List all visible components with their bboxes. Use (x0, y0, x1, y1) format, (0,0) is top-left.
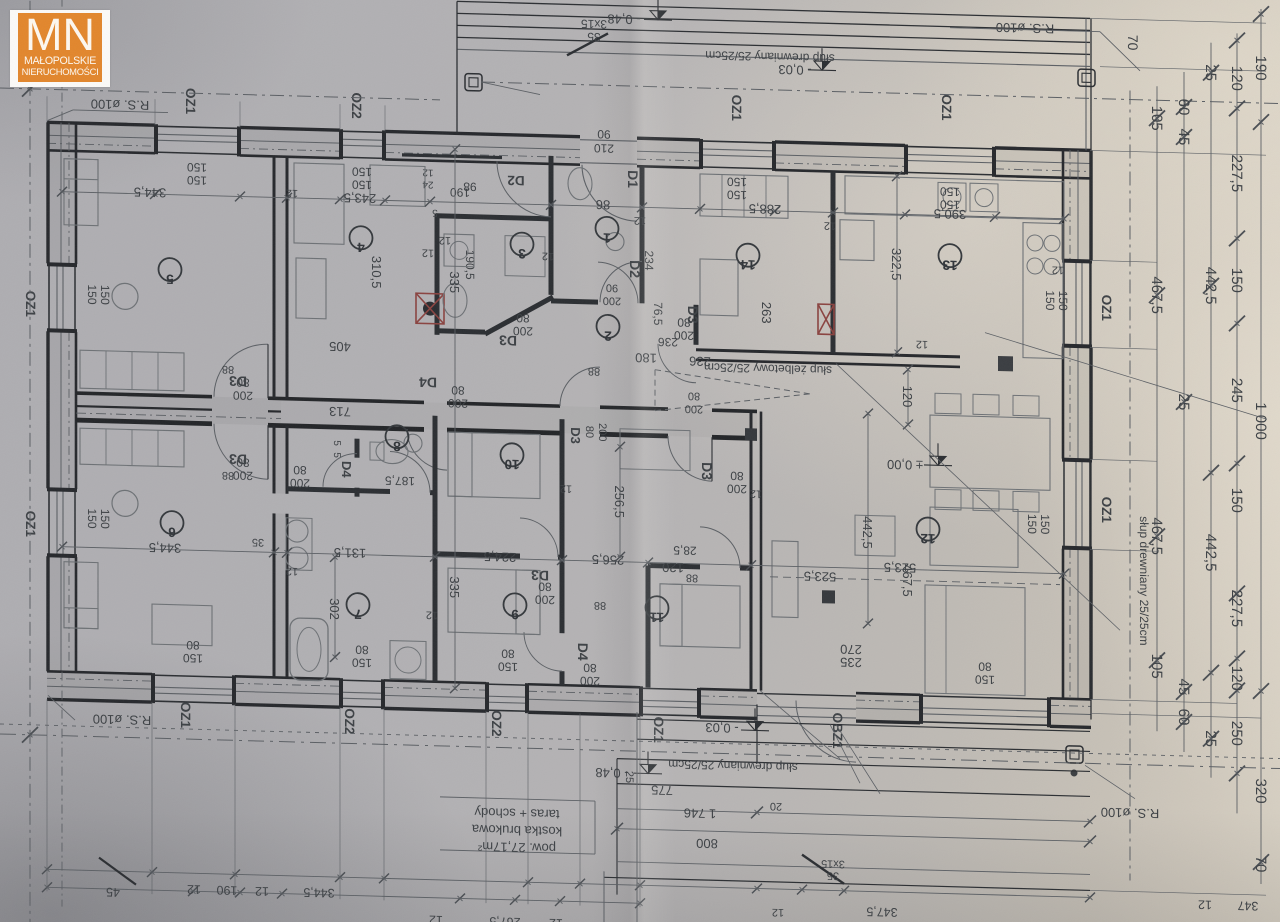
svg-text:80: 80 (978, 659, 992, 673)
svg-text:200: 200 (290, 476, 310, 491)
svg-text:150: 150 (352, 164, 372, 179)
svg-text:80: 80 (730, 469, 744, 483)
svg-text:190: 190 (1252, 55, 1269, 80)
svg-text:150: 150 (1056, 290, 1070, 311)
svg-text:5: 5 (432, 207, 438, 218)
svg-text:200: 200 (535, 592, 555, 607)
svg-text:OZ1: OZ1 (1099, 295, 1114, 322)
svg-text:5: 5 (331, 452, 342, 458)
svg-text:D2: D2 (507, 173, 524, 188)
svg-text:12: 12 (824, 219, 836, 231)
svg-text:12: 12 (429, 913, 443, 922)
svg-text:344,5: 344,5 (303, 885, 334, 900)
svg-text:263: 263 (759, 302, 774, 324)
svg-text:442,5: 442,5 (1202, 267, 1219, 305)
svg-text:24: 24 (422, 178, 434, 189)
svg-text:150: 150 (187, 160, 207, 175)
svg-text:302: 302 (327, 598, 342, 620)
svg-text:347: 347 (1238, 898, 1259, 913)
svg-text:5: 5 (166, 271, 174, 286)
svg-text:80: 80 (516, 311, 530, 325)
svg-text:80: 80 (501, 647, 515, 661)
svg-text:190: 190 (217, 883, 238, 898)
svg-text:5: 5 (331, 440, 342, 446)
svg-text:347,5: 347,5 (866, 904, 897, 919)
svg-text:150: 150 (1228, 488, 1245, 513)
svg-text:R.S. ø100: R.S. ø100 (93, 712, 152, 729)
svg-text:D3: D3 (229, 451, 247, 467)
svg-text:12: 12 (439, 234, 451, 246)
svg-text:150: 150 (183, 651, 203, 666)
svg-text:267,5: 267,5 (489, 914, 520, 922)
svg-text:335: 335 (447, 271, 462, 293)
svg-text:80: 80 (186, 638, 200, 652)
svg-text:12: 12 (422, 246, 434, 258)
svg-text:150: 150 (85, 508, 99, 529)
svg-text:12: 12 (920, 531, 935, 546)
svg-text:405: 405 (329, 339, 351, 355)
svg-text:227,5: 227,5 (1228, 589, 1245, 627)
svg-text:R.S. ø100: R.S. ø100 (996, 20, 1055, 37)
svg-text:200: 200 (233, 468, 253, 483)
svg-text:467,5: 467,5 (900, 564, 915, 597)
svg-text:150: 150 (1038, 514, 1052, 535)
svg-text:98: 98 (463, 180, 477, 194)
svg-text:12: 12 (542, 250, 554, 262)
svg-text:6: 6 (168, 525, 176, 540)
svg-text:D4: D4 (575, 643, 591, 662)
svg-text:45: 45 (1175, 678, 1192, 695)
svg-text:150: 150 (975, 672, 995, 687)
svg-text:150: 150 (727, 188, 747, 203)
svg-text:310,5: 310,5 (369, 256, 384, 289)
svg-text:OZ1: OZ1 (1099, 497, 1114, 524)
svg-text:25: 25 (1202, 730, 1219, 747)
svg-text:- 0,03: - 0,03 (705, 720, 738, 736)
svg-text:150: 150 (1025, 514, 1039, 535)
svg-text:słup drewniany 25/25cm: słup drewniany 25/25cm (1137, 516, 1151, 646)
svg-text:45: 45 (106, 885, 120, 899)
svg-text:12: 12 (549, 916, 563, 922)
svg-text:13: 13 (942, 257, 958, 272)
svg-text:12: 12 (426, 608, 438, 620)
svg-text:28,5: 28,5 (673, 543, 697, 558)
svg-text:45: 45 (1175, 128, 1192, 145)
svg-text:442,5: 442,5 (860, 516, 875, 549)
svg-text:D3: D3 (568, 427, 583, 444)
svg-text:D4: D4 (339, 461, 354, 479)
svg-text:D3: D3 (699, 462, 715, 481)
svg-text:322,5: 322,5 (889, 248, 904, 281)
svg-text:200: 200 (448, 396, 468, 411)
svg-text:D3: D3 (499, 332, 517, 348)
svg-text:150: 150 (352, 177, 372, 192)
svg-text:150: 150 (98, 509, 112, 530)
svg-text:523,5: 523,5 (804, 569, 837, 585)
svg-text:344,5: 344,5 (134, 185, 167, 201)
svg-text:80: 80 (688, 390, 700, 402)
svg-text:1 746: 1 746 (684, 805, 717, 821)
svg-text:70: 70 (1252, 855, 1269, 872)
svg-text:250: 250 (1228, 721, 1245, 746)
svg-text:245: 245 (1228, 378, 1245, 403)
svg-text:60: 60 (1175, 98, 1192, 115)
svg-text:150: 150 (498, 659, 518, 674)
svg-text:D3: D3 (229, 373, 247, 389)
svg-text:150: 150 (85, 284, 99, 305)
svg-text:105: 105 (1148, 653, 1165, 678)
svg-text:80: 80 (293, 463, 307, 477)
svg-text:OZ2: OZ2 (342, 708, 357, 735)
svg-text:235: 235 (840, 655, 862, 671)
svg-text:8: 8 (393, 439, 401, 454)
svg-text:- 0,03: - 0,03 (778, 62, 811, 78)
svg-text:120: 120 (900, 385, 915, 407)
svg-text:OZ1: OZ1 (183, 88, 198, 115)
svg-text:190,5: 190,5 (463, 249, 477, 280)
svg-text:320: 320 (1252, 778, 1269, 803)
svg-text:taras + schody: taras + schody (474, 805, 559, 822)
svg-text:12: 12 (1052, 263, 1064, 275)
svg-text:OZ1: OZ1 (729, 95, 744, 122)
svg-text:344,5: 344,5 (149, 540, 182, 556)
svg-text:OZ2: OZ2 (489, 710, 504, 737)
svg-text:25: 25 (1175, 393, 1192, 410)
svg-text:150: 150 (940, 197, 960, 212)
svg-text:35: 35 (827, 869, 839, 881)
svg-text:60: 60 (1175, 708, 1192, 725)
svg-text:3x15: 3x15 (821, 857, 845, 870)
svg-text:200: 200 (685, 402, 703, 414)
svg-text:± 0,00: ± 0,00 (887, 457, 923, 473)
svg-text:12: 12 (750, 487, 762, 499)
svg-text:150: 150 (187, 173, 207, 188)
svg-text:12: 12 (255, 884, 269, 898)
svg-text:120: 120 (1228, 66, 1245, 91)
svg-text:150: 150 (940, 184, 960, 199)
svg-text:467,5: 467,5 (1148, 276, 1165, 314)
svg-text:150: 150 (352, 655, 372, 670)
svg-text:12: 12 (916, 338, 928, 350)
svg-text:D4: D4 (419, 374, 437, 390)
svg-text:80: 80 (451, 383, 465, 397)
svg-text:7: 7 (354, 607, 362, 622)
svg-text:88: 88 (222, 469, 234, 481)
svg-text:88: 88 (686, 572, 698, 584)
svg-text:słup drewniany 25/25cm: słup drewniany 25/25cm (668, 757, 797, 774)
svg-text:224,5: 224,5 (484, 549, 517, 565)
svg-text:12: 12 (286, 565, 298, 577)
svg-text:150: 150 (727, 175, 747, 190)
svg-text:288,5: 288,5 (749, 201, 782, 217)
svg-text:12: 12 (560, 482, 572, 494)
svg-text:14: 14 (740, 257, 756, 272)
svg-text:12: 12 (1198, 897, 1212, 911)
svg-text:12: 12 (286, 187, 298, 199)
svg-text:OZ1: OZ1 (939, 94, 954, 121)
svg-text:150: 150 (1228, 268, 1245, 293)
svg-text:D3: D3 (531, 567, 549, 583)
svg-text:25: 25 (1202, 64, 1219, 81)
svg-text:150: 150 (98, 285, 112, 306)
svg-text:70: 70 (1125, 35, 1141, 51)
svg-text:713: 713 (329, 404, 351, 420)
svg-text:35: 35 (252, 536, 264, 548)
svg-text:150: 150 (1043, 290, 1057, 311)
svg-text:D3: D3 (685, 306, 701, 325)
svg-text:12: 12 (422, 166, 434, 177)
svg-text:kostka brukowa: kostka brukowa (471, 822, 562, 839)
svg-text:800: 800 (696, 836, 718, 852)
svg-text:1 000: 1 000 (1252, 402, 1269, 440)
svg-text:pow. 27,17m²: pow. 27,17m² (477, 839, 556, 856)
svg-text:187,5: 187,5 (385, 473, 415, 488)
svg-text:80: 80 (355, 643, 369, 657)
svg-text:200: 200 (727, 482, 747, 497)
svg-text:3: 3 (518, 246, 526, 261)
svg-text:OBZ1: OBZ1 (830, 712, 845, 749)
svg-text:200: 200 (674, 328, 694, 343)
svg-text:20: 20 (770, 800, 782, 812)
svg-text:OZ2: OZ2 (349, 92, 364, 119)
svg-text:120: 120 (1228, 666, 1245, 691)
svg-text:9: 9 (511, 607, 519, 622)
svg-text:442,5: 442,5 (1202, 534, 1219, 572)
svg-text:105: 105 (1148, 105, 1165, 130)
svg-text:335: 335 (447, 576, 462, 598)
svg-text:10: 10 (504, 457, 519, 472)
svg-text:4: 4 (357, 240, 365, 255)
svg-text:12: 12 (187, 882, 201, 896)
svg-text:12: 12 (772, 906, 784, 918)
svg-text:OZ1: OZ1 (178, 702, 193, 729)
svg-text:227,5: 227,5 (1228, 154, 1245, 192)
